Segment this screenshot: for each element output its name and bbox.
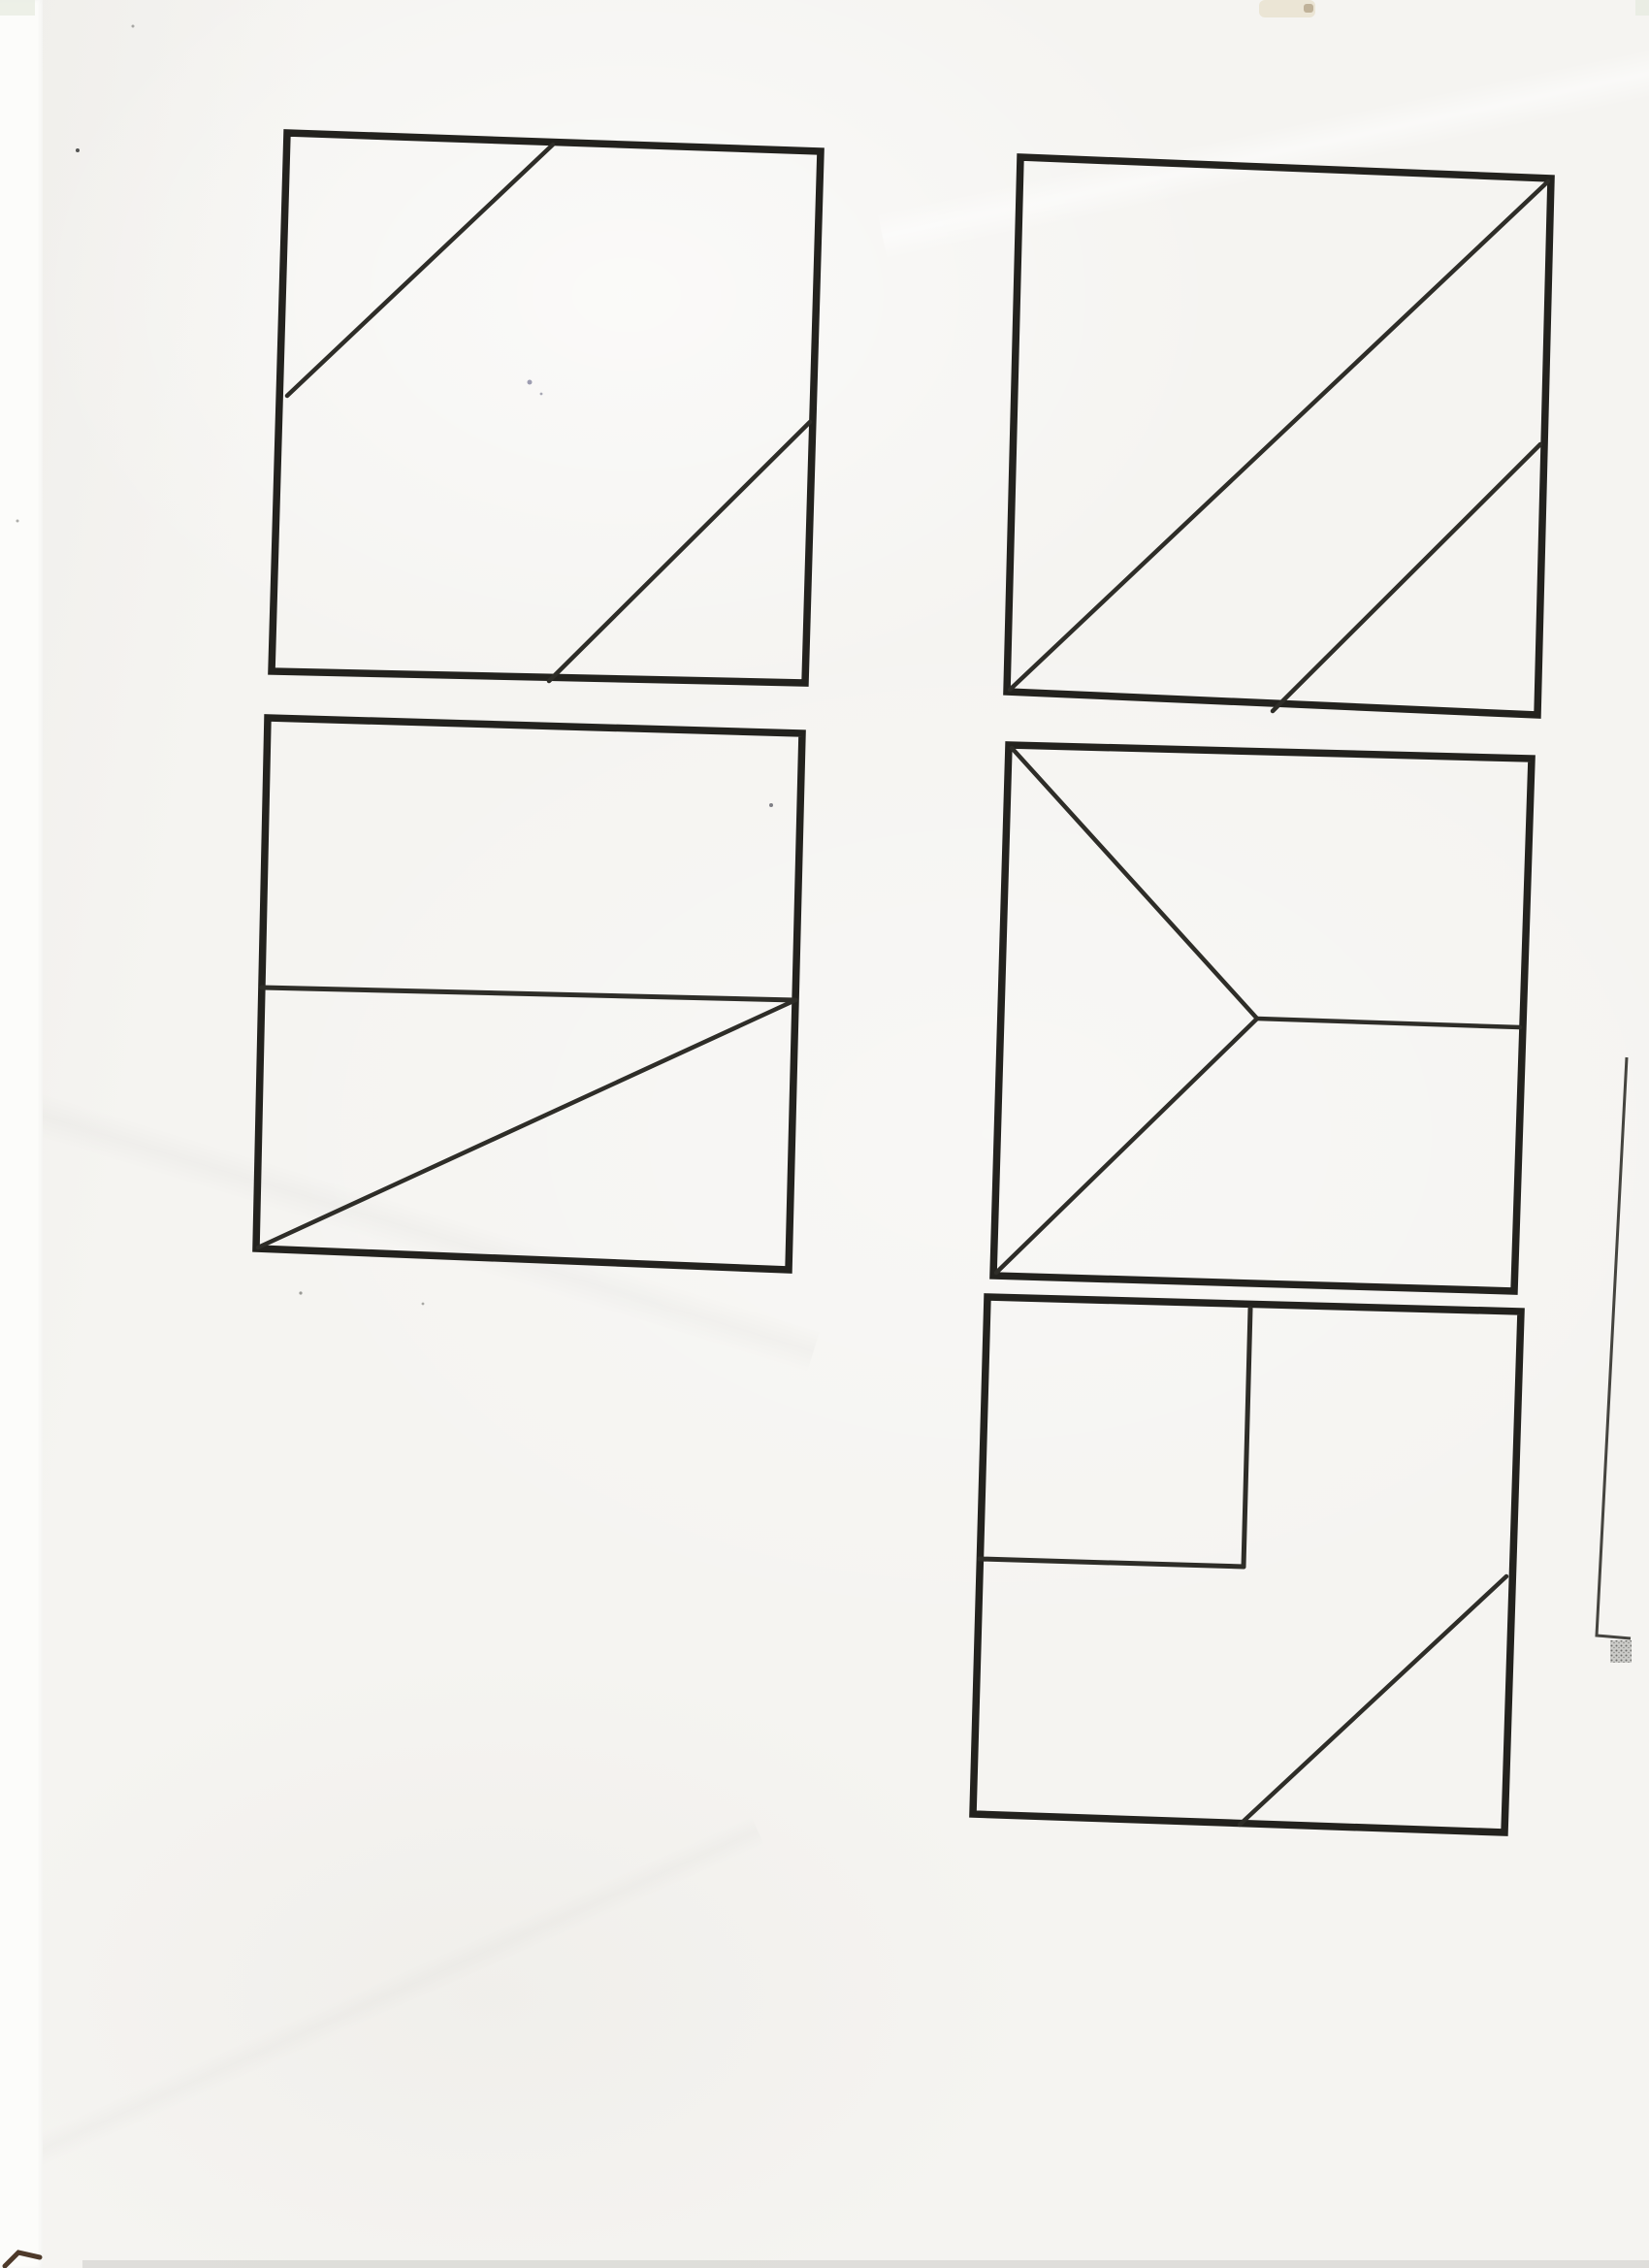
overlapping-page-edge-line	[1597, 1057, 1631, 1638]
figure-5	[973, 1297, 1521, 1832]
figure-4-line-1	[1012, 748, 1257, 1019]
paper-speck-1	[528, 380, 533, 385]
figure-5-line-1	[1244, 1309, 1250, 1567]
figure-1	[272, 133, 821, 683]
figure-4-line-2	[996, 1019, 1257, 1273]
paper-speck-2	[540, 393, 543, 396]
figure-3-line-2	[258, 1000, 795, 1247]
figure-2-line-1	[1010, 181, 1548, 690]
figure-2	[1007, 157, 1551, 715]
figure-4	[993, 745, 1532, 1291]
figure-5-line-3	[1240, 1576, 1506, 1825]
figure-1-line-2	[549, 422, 810, 681]
figure-1-outline	[272, 133, 821, 683]
scanned-page	[0, 0, 1649, 2268]
figure-1-line-1	[287, 145, 553, 396]
paper-speck-3	[76, 148, 80, 152]
paper-speck-5	[132, 25, 135, 28]
paper-speck-8	[422, 1303, 425, 1306]
bottom-left-ink-mark	[5, 2252, 40, 2266]
figure-2-line-2	[1273, 444, 1540, 711]
top-edge-smudge-fleck	[1304, 4, 1313, 13]
figures-layer	[0, 0, 1649, 2268]
scan-noise-patch	[1610, 1640, 1632, 1663]
figure-4-line-3	[1257, 1019, 1520, 1027]
figure-5-line-2	[980, 1559, 1244, 1567]
paper-speck-7	[299, 1291, 302, 1294]
figure-3	[256, 718, 802, 1270]
paper-speck-6	[16, 520, 19, 523]
paper-speck-4	[769, 803, 773, 807]
figure-3-line-1	[262, 988, 795, 1000]
